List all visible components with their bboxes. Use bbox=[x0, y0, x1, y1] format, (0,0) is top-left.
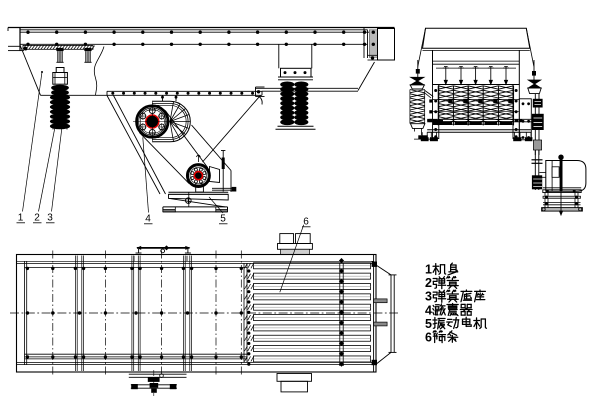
svg-text:2: 2 bbox=[34, 213, 40, 224]
svg-text:2: 2 bbox=[425, 276, 432, 290]
svg-text:6: 6 bbox=[425, 330, 432, 344]
svg-text:4: 4 bbox=[145, 214, 151, 225]
svg-text:3: 3 bbox=[425, 290, 432, 304]
svg-text:5: 5 bbox=[220, 214, 226, 225]
svg-text:6: 6 bbox=[303, 217, 309, 228]
svg-text:5: 5 bbox=[425, 317, 432, 331]
svg-text:3: 3 bbox=[47, 213, 53, 224]
svg-text:1: 1 bbox=[18, 213, 24, 224]
svg-text:1: 1 bbox=[425, 263, 432, 277]
svg-text:4: 4 bbox=[425, 303, 432, 317]
